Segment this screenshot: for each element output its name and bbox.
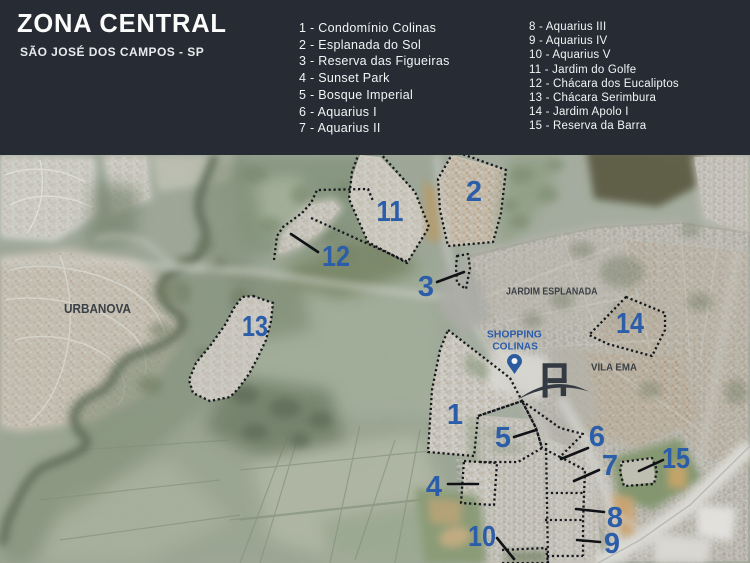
svg-text:2: 2 — [466, 176, 482, 208]
svg-text:COLINAS: COLINAS — [492, 340, 538, 352]
svg-text:11: 11 — [377, 196, 404, 228]
svg-text:SHOPPING: SHOPPING — [487, 329, 542, 341]
svg-text:14: 14 — [616, 308, 644, 340]
svg-text:4: 4 — [426, 471, 442, 503]
svg-text:13: 13 — [242, 311, 268, 343]
svg-text:10: 10 — [468, 521, 496, 553]
svg-text:1: 1 — [447, 399, 463, 431]
svg-text:9: 9 — [604, 528, 620, 560]
svg-text:JARDIM ESPLANADA: JARDIM ESPLANADA — [506, 286, 598, 298]
svg-text:URBANOVA: URBANOVA — [64, 301, 132, 316]
svg-text:6: 6 — [589, 421, 605, 453]
svg-text:12: 12 — [322, 241, 350, 273]
svg-text:15: 15 — [662, 443, 690, 475]
svg-text:VILA EMA: VILA EMA — [591, 362, 637, 374]
svg-text:5: 5 — [495, 422, 511, 454]
svg-text:3: 3 — [418, 271, 434, 303]
svg-text:7: 7 — [602, 450, 618, 482]
